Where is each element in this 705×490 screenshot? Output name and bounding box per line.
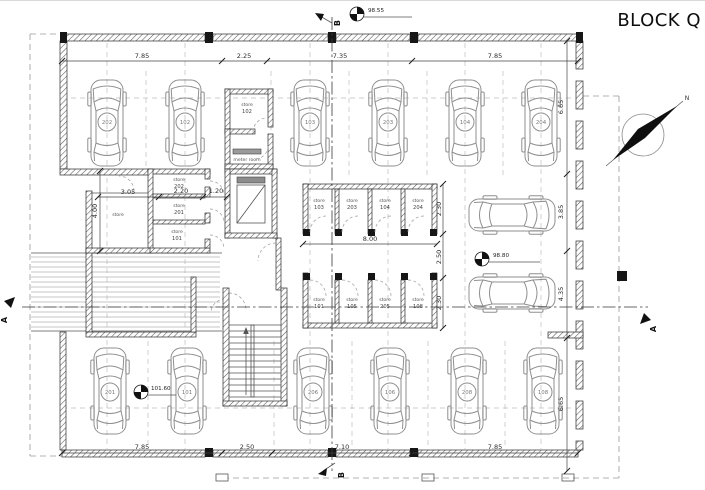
svg-text:store: store (412, 297, 424, 303)
meter-room-label: meter room (233, 157, 261, 163)
svg-text:108: 108 (413, 304, 423, 310)
store-room-102: store 102 (241, 102, 253, 115)
level-value: 98.55 (368, 8, 384, 14)
dim-label: 1.20 (209, 187, 223, 195)
svg-text:store: store (346, 198, 358, 204)
svg-text:store: store (346, 297, 358, 303)
page-title: BLOCK Q (617, 10, 701, 31)
svg-text:101: 101 (314, 304, 324, 310)
svg-text:store: store (412, 198, 424, 204)
car-number: 206 (308, 390, 319, 396)
section-marker-a-right: A (640, 313, 658, 332)
elevator (225, 169, 277, 238)
level-value: 98.80 (493, 253, 509, 259)
svg-text:store: store (171, 229, 183, 235)
car-number: 104 (460, 120, 471, 126)
dim-label: 8.00 (363, 235, 377, 243)
section-marker-b-top: B (315, 13, 342, 26)
car-number: 201 (105, 390, 115, 396)
section-marker-a-left: A (0, 297, 15, 323)
dim-label: 3.05 (121, 188, 135, 196)
dim-label: 6.65 (557, 100, 565, 114)
svg-text:204: 204 (413, 205, 424, 211)
north-label: N (685, 95, 690, 102)
section-label-b: B (333, 20, 342, 26)
svg-text:203: 203 (347, 205, 357, 211)
car-number: 106 (385, 390, 396, 396)
svg-text:store: store (379, 297, 391, 303)
dim-label: 2.30 (435, 296, 443, 310)
svg-text:store: store (241, 102, 253, 108)
store-room-left-1: store 202 (173, 177, 185, 190)
dim-label: 7.35 (333, 52, 347, 60)
svg-text:105: 105 (347, 304, 357, 310)
dim-label: 2.50 (240, 443, 254, 451)
car-number: 102 (180, 120, 190, 126)
car-number: 103 (305, 120, 315, 126)
dim-label: 6.65 (557, 397, 565, 411)
car-number: 108 (538, 390, 549, 396)
svg-text:store: store (313, 297, 325, 303)
section-label-a: A (649, 325, 658, 332)
svg-text:103: 103 (314, 205, 324, 211)
floor-plan-drawing: 202 102 103 203 104 204 201 101 206 106 … (0, 1, 705, 490)
svg-text:102: 102 (242, 109, 252, 115)
floor-plan-sheet: 202 102 103 203 104 204 201 101 206 106 … (0, 0, 705, 490)
dim-label: 7.85 (488, 52, 502, 60)
level-marker-middle: 98.80 (475, 252, 540, 266)
dimension-top: 7.85 2.25 7.35 7.85 (59, 52, 581, 64)
dimension-right: 6.65 3.85 4.35 6.65 (557, 38, 570, 474)
svg-text:104: 104 (380, 205, 391, 211)
dim-label: 7.85 (135, 443, 149, 451)
svg-text:store: store (173, 177, 185, 183)
section-label-a: A (0, 316, 9, 323)
dim-label: 7.10 (335, 443, 349, 451)
section-label-b: B (337, 472, 346, 478)
meter-board (233, 149, 261, 154)
car-number: 203 (383, 120, 393, 126)
svg-text:store: store (313, 198, 325, 204)
level-marker-upper: 98.55 (350, 7, 412, 21)
dim-label: 4.00 (91, 204, 99, 218)
dim-label: 4.35 (557, 287, 565, 301)
level-marker-lower: 101.60 (134, 385, 176, 399)
svg-text:store: store (173, 203, 185, 209)
car-number-badges-top: 202 102 103 203 104 204 (98, 113, 550, 131)
store-room-left-3: store 101 (171, 229, 183, 242)
level-value: 101.60 (151, 386, 171, 392)
dim-label: 2.25 (237, 52, 251, 60)
car-number: 204 (536, 120, 547, 126)
dim-label: 3.85 (557, 205, 565, 219)
car-number: 208 (462, 390, 473, 396)
store-room-left-big-label: store (112, 212, 124, 218)
car-number: 101 (182, 390, 192, 396)
dim-label: 2.50 (435, 250, 443, 264)
car-number: 202 (102, 120, 112, 126)
cars-top-row: 202 102 103 203 104 204 (88, 80, 560, 166)
svg-text:101: 101 (172, 236, 182, 242)
stairs (223, 288, 287, 406)
dim-label: 7.85 (488, 443, 502, 451)
north-arrow: N (606, 95, 689, 166)
svg-text:store: store (379, 198, 391, 204)
svg-text:205: 205 (380, 304, 390, 310)
svg-text:201: 201 (174, 210, 184, 216)
dim-label: 7.85 (135, 52, 149, 60)
svg-text:202: 202 (174, 184, 184, 190)
store-room-left-2: store 201 (173, 203, 185, 216)
dim-label: 2.30 (435, 202, 443, 216)
